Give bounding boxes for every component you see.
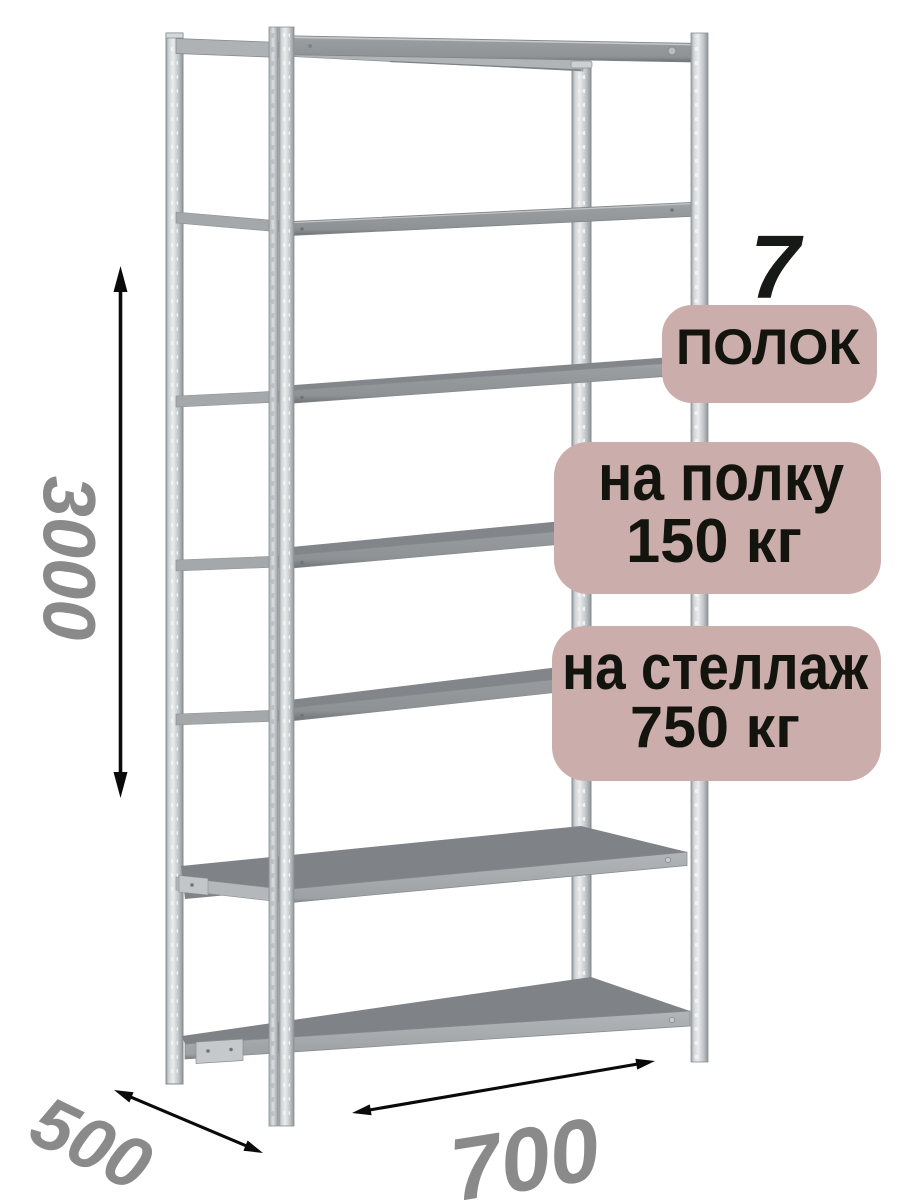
svg-text:750 кг: 750 кг <box>630 695 800 760</box>
svg-text:на стеллаж: на стеллаж <box>562 631 869 703</box>
svg-text:150 кг: 150 кг <box>626 507 802 576</box>
svg-text:3000: 3000 <box>28 476 111 641</box>
svg-text:7: 7 <box>750 218 804 318</box>
svg-text:ПОЛОК: ПОЛОК <box>676 319 860 375</box>
svg-text:на полку: на полку <box>598 440 844 514</box>
